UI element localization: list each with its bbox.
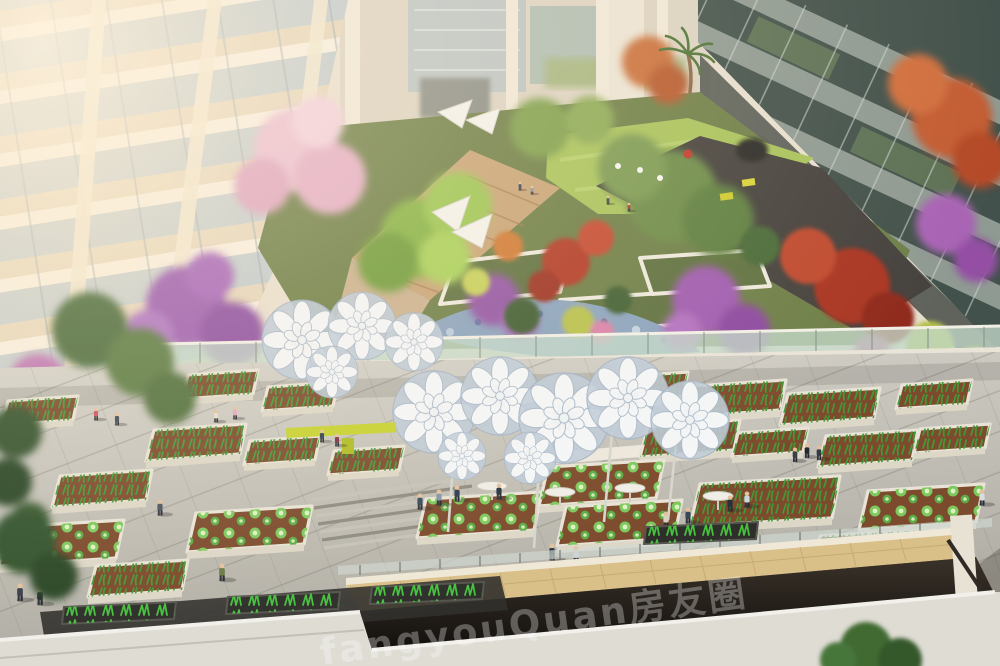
rendering-canvas: fangyouQuan房友圈 [0,0,1000,666]
courtyard-rendering: fangyouQuan房友圈 [0,0,1000,666]
sun-glare [0,0,1000,666]
